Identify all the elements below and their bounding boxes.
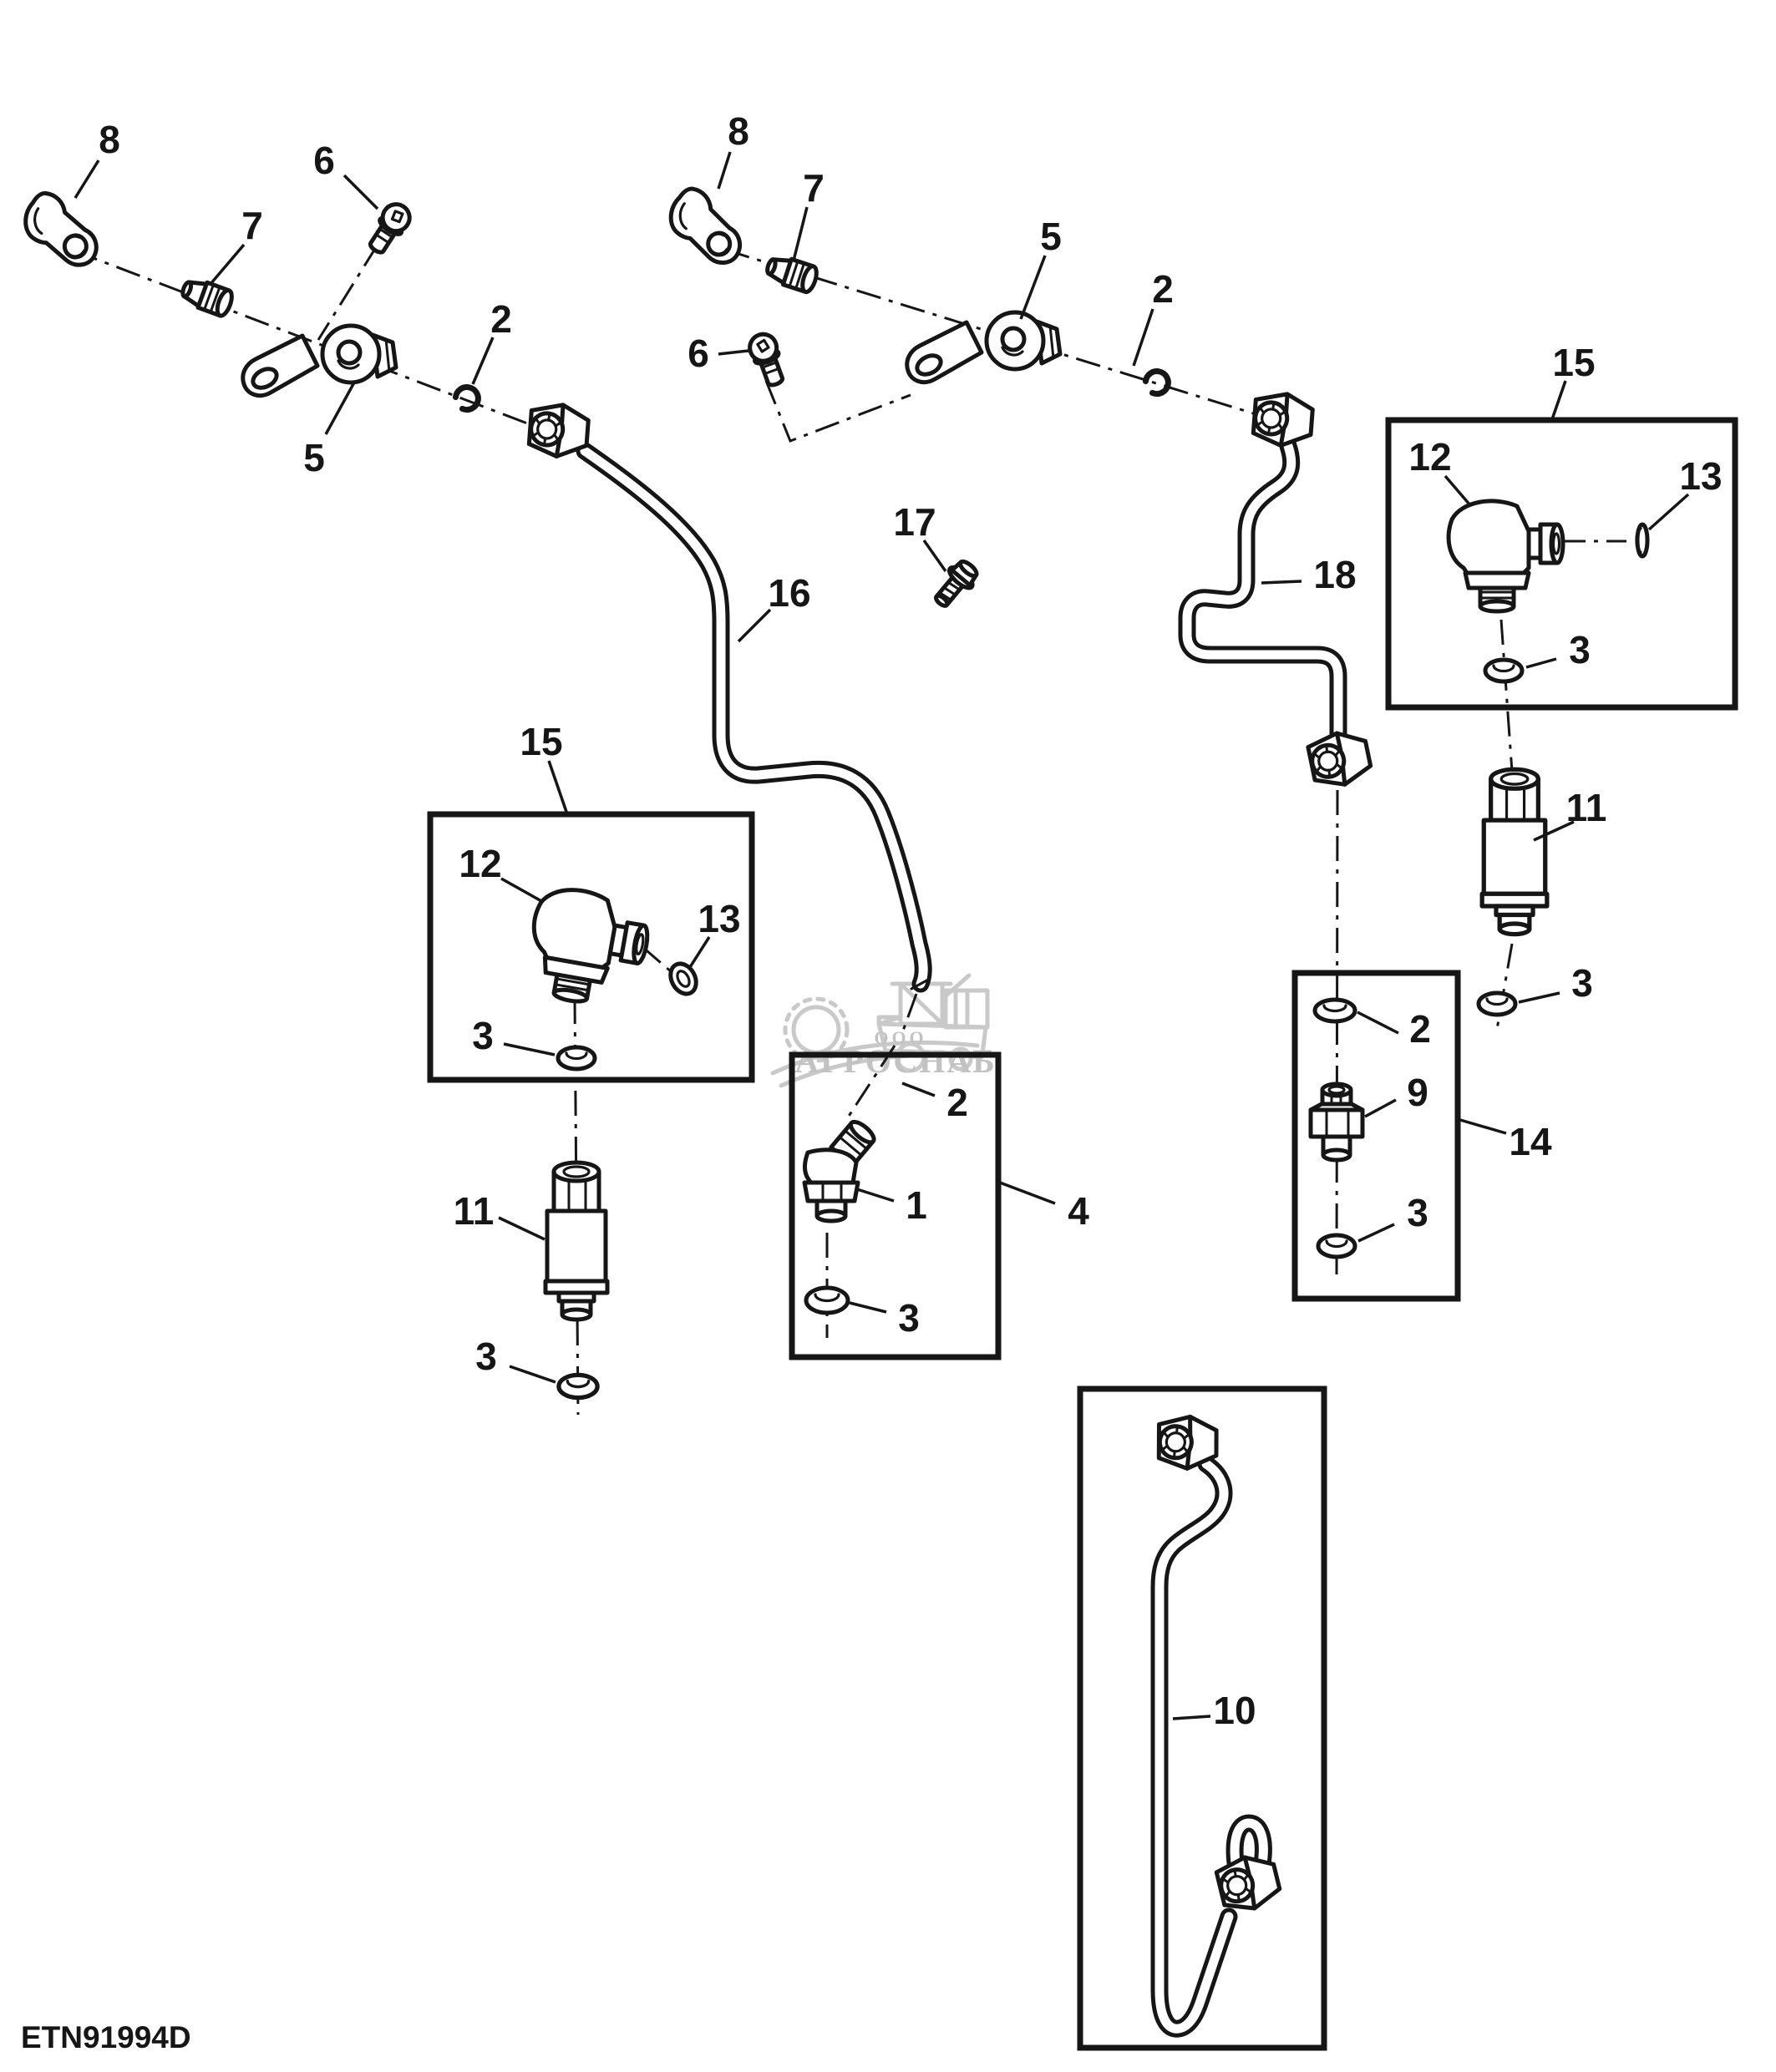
leader-line-part-8 — [75, 160, 99, 198]
clamp-part-8 — [669, 185, 741, 266]
callout-part-7: 7 — [241, 204, 263, 247]
seal-ring-part-2 — [454, 383, 483, 413]
bushing-part-7 — [179, 276, 234, 317]
callout-part-8: 8 — [728, 109, 749, 153]
callout-part-16: 16 — [768, 571, 810, 615]
callout-part-9: 9 — [1407, 1071, 1428, 1114]
leader-line-part-3 — [510, 1366, 556, 1382]
callout-part-14: 14 — [1509, 1120, 1552, 1163]
callout-part-12: 12 — [1408, 435, 1451, 479]
callout-part-8: 8 — [99, 118, 120, 161]
callout-part-3: 3 — [1407, 1191, 1428, 1234]
leader-line-part-3 — [504, 1044, 555, 1055]
connector-part-11 — [545, 1163, 607, 1320]
seal-ring-part-2 — [1315, 1000, 1355, 1021]
o-ring-part-3 — [806, 1288, 848, 1313]
leader-line-part-15 — [549, 761, 566, 812]
bolt-part-17 — [929, 556, 982, 612]
o-ring-part-3 — [1479, 993, 1515, 1015]
leader-line-part-3 — [850, 1303, 886, 1312]
leader-line-part-16 — [738, 610, 770, 641]
leader-line-part-7 — [794, 207, 807, 261]
leader-line-part-6 — [718, 351, 748, 354]
callout-part-2: 2 — [946, 1081, 968, 1124]
callout-part-2: 2 — [490, 297, 512, 341]
callout-part-6: 6 — [688, 332, 709, 375]
leader-line-part-13 — [1649, 494, 1688, 529]
leader-line-part-2 — [902, 1083, 935, 1096]
callout-part-7: 7 — [803, 166, 825, 210]
leader-line-part-14 — [1460, 1120, 1506, 1133]
fuel-line-16 — [585, 451, 930, 989]
o-ring-part-3 — [559, 1375, 597, 1397]
center-line — [766, 381, 911, 441]
watermark-company-name: АГРОСНАБ — [794, 1042, 996, 1080]
fuel-lines — [585, 446, 1338, 2029]
callout-part-1: 1 — [906, 1183, 927, 1227]
bushing-part-7 — [764, 253, 819, 294]
plug-part-13 — [1636, 524, 1647, 556]
callout-part-3: 3 — [472, 1014, 494, 1057]
tube-nut-line-18-lower — [1307, 730, 1373, 788]
watermark: ООО АГРОСНАБ — [773, 975, 997, 1086]
leader-line-part-7 — [211, 245, 244, 284]
leader-line-part-12 — [501, 879, 543, 902]
leader-line-part-2 — [473, 337, 493, 384]
callout-part-13: 13 — [1679, 454, 1722, 498]
o-ring-part-3 — [1485, 660, 1522, 681]
callout-part-6: 6 — [313, 139, 335, 182]
center-line — [1496, 944, 1512, 1034]
callout-part-2: 2 — [1152, 267, 1174, 311]
leader-line-part-9 — [1365, 1100, 1396, 1117]
union-fitting-part-9 — [1311, 1084, 1362, 1160]
callout-part-15: 15 — [520, 720, 562, 763]
screw-part-6 — [363, 200, 414, 258]
bracket-part-5 — [907, 312, 1060, 382]
leader-line-part-13 — [690, 937, 709, 967]
drawing-code: ETN91994D — [21, 2020, 191, 2054]
leader-line-part-18 — [1261, 581, 1302, 583]
tube-nut-line-18 — [1249, 389, 1317, 451]
leader-line-part-4 — [1000, 1183, 1055, 1203]
callout-part-18: 18 — [1313, 553, 1356, 596]
screw-part-6 — [746, 331, 789, 389]
callout-part-2: 2 — [1409, 1007, 1431, 1051]
center-line — [1501, 620, 1512, 772]
leader-line-part-12 — [1445, 476, 1470, 505]
clamp-part-8 — [22, 187, 99, 271]
seal-ring-part-2 — [1144, 367, 1173, 398]
leader-line-part-1 — [857, 1189, 894, 1201]
o-ring-part-13 — [666, 960, 702, 999]
leader-line-part-3 — [1358, 1224, 1394, 1241]
callout-part-15: 15 — [1552, 341, 1595, 384]
callout-part-4: 4 — [1068, 1189, 1089, 1233]
leader-line-part-17 — [924, 540, 946, 571]
center-line — [1337, 790, 1337, 1279]
leader-line-part-2 — [1134, 309, 1153, 366]
callout-part-5: 5 — [1040, 215, 1062, 258]
exploded-parts-diagram: ООО АГРОСНАБ — [0, 0, 1776, 2072]
callout-part-12: 12 — [459, 842, 501, 885]
callout-part-5: 5 — [303, 436, 325, 479]
callout-part-3: 3 — [1571, 961, 1593, 1005]
o-ring-part-3 — [558, 1047, 595, 1069]
callout-part-3: 3 — [475, 1335, 497, 1378]
o-ring-part-3 — [1318, 1235, 1355, 1257]
connector-part-11 — [1482, 769, 1547, 934]
callout-part-17: 17 — [893, 500, 936, 544]
callout-part-11: 11 — [1566, 786, 1607, 829]
leader-line-part-3 — [1526, 659, 1556, 667]
leader-line-part-2 — [1357, 1012, 1398, 1033]
leader-line-part-5 — [326, 382, 354, 434]
callout-part-13: 13 — [698, 897, 740, 940]
leader-line-part-8 — [718, 152, 730, 189]
tube-nut-line-10-lower — [1215, 1853, 1281, 1912]
leader-line-part-10 — [1173, 1716, 1210, 1719]
leader-line-part-6 — [344, 175, 378, 209]
leader-line-part-3 — [1519, 993, 1560, 1002]
elbow-fitting-part-12 — [1449, 501, 1563, 611]
group-box-10 — [1080, 1389, 1324, 2048]
elbow-45-fitting-part-1 — [804, 1118, 877, 1221]
parts-diagram-page: ООО АГРОСНАБ — [0, 0, 1776, 2072]
callout-part-11: 11 — [454, 1189, 495, 1233]
leader-line-part-11 — [499, 1218, 545, 1239]
fuel-line-10 — [1159, 1464, 1263, 2029]
callout-part-10: 10 — [1213, 1689, 1256, 1732]
leader-line-part-5 — [1021, 256, 1045, 319]
callout-part-3: 3 — [898, 1296, 920, 1340]
callout-part-3: 3 — [1569, 628, 1591, 671]
leader-line-part-15 — [1552, 381, 1565, 419]
